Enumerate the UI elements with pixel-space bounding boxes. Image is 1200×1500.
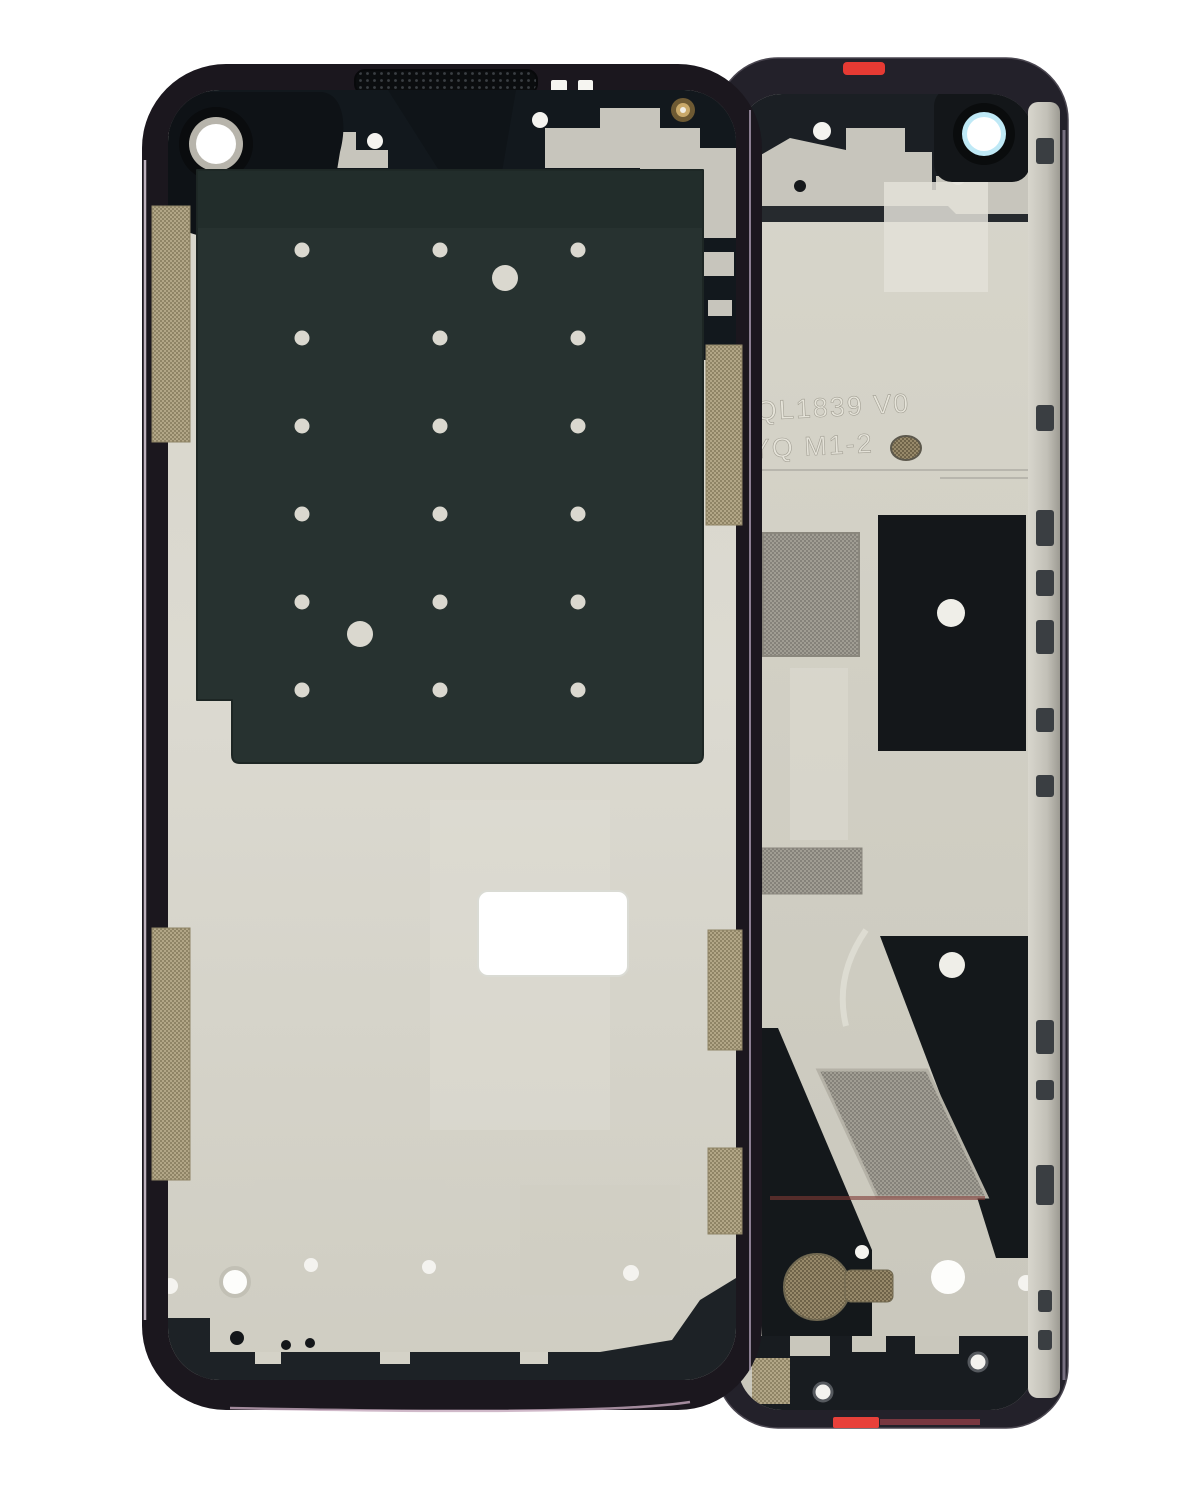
panel-hole [937, 599, 965, 627]
plate-soft-patch [255, 1180, 445, 1270]
mic-mesh-dot [891, 436, 921, 460]
screw-hole [422, 1260, 436, 1274]
bottom-hole-large [221, 1268, 249, 1296]
antenna-mesh-strip-right-bottom [708, 1148, 742, 1234]
blank-label-sticker [478, 891, 628, 976]
alignment-dot-dark [281, 1340, 291, 1350]
strip-notch [520, 1352, 548, 1364]
phone-frames-illustration: QL1839 V0 YQ M1-2 [0, 0, 1200, 1500]
strip-notch [255, 1352, 281, 1364]
mesh-patch-bottom-left [752, 1358, 790, 1404]
graphite-sheet-top-shade [197, 170, 703, 228]
mesh-patch-gray [763, 533, 859, 656]
camera-lens-opening [967, 117, 1001, 151]
plate-light-column [790, 668, 848, 840]
screw-hole [367, 133, 383, 149]
screw-hole [623, 1265, 639, 1281]
silver-step [708, 300, 732, 316]
bottom-hole-large [931, 1260, 965, 1294]
screw-hole [855, 1245, 869, 1259]
screw-hole [814, 1383, 832, 1401]
screw-hole-dark [794, 180, 806, 192]
graphite-sheet [197, 170, 703, 763]
product-photo: QL1839 V0 YQ M1-2 [0, 0, 1200, 1500]
adhesive-hole [939, 952, 965, 978]
sheet-large-hole [492, 265, 518, 291]
right-frame: QL1839 V0 YQ M1-2 [716, 58, 1068, 1428]
red-adhesive-edge [770, 1196, 985, 1200]
left-frame [142, 64, 762, 1411]
plate-light-patch [884, 182, 988, 292]
antenna-mesh-strip-right-top [706, 345, 742, 525]
band-notch [915, 1336, 959, 1354]
alignment-dot-dark [230, 1331, 244, 1345]
plate-soft-patch [520, 1185, 680, 1295]
band-notch [852, 1336, 886, 1352]
red-adhesive-tab-bottom [833, 1417, 879, 1428]
screw-hole [969, 1353, 987, 1371]
vibration-motor [784, 1254, 850, 1320]
alignment-dot-dark [305, 1338, 315, 1348]
screw-hole [813, 122, 831, 140]
antenna-mesh-strip-left-bottom [152, 928, 190, 1180]
red-pull-tab-top [843, 62, 885, 75]
screw-hole [304, 1258, 318, 1272]
silver-step [704, 252, 734, 276]
antenna-mesh-strip-left-top [152, 206, 190, 442]
front-camera-opening [196, 124, 236, 164]
band-notch [790, 1336, 830, 1356]
red-adhesive-strip-bottom [880, 1419, 980, 1425]
mold-marking-line2: YQ M1-2 [751, 428, 874, 464]
strip-notch [380, 1352, 410, 1364]
antenna-mesh-strip-right-mid [708, 930, 742, 1050]
black-adhesive-panel [878, 515, 1026, 751]
mesh-patch-small [762, 848, 862, 894]
gold-screw-center [680, 107, 686, 113]
screw-hole [532, 112, 548, 128]
vibration-motor-arm [845, 1270, 893, 1302]
sheet-large-hole [347, 621, 373, 647]
